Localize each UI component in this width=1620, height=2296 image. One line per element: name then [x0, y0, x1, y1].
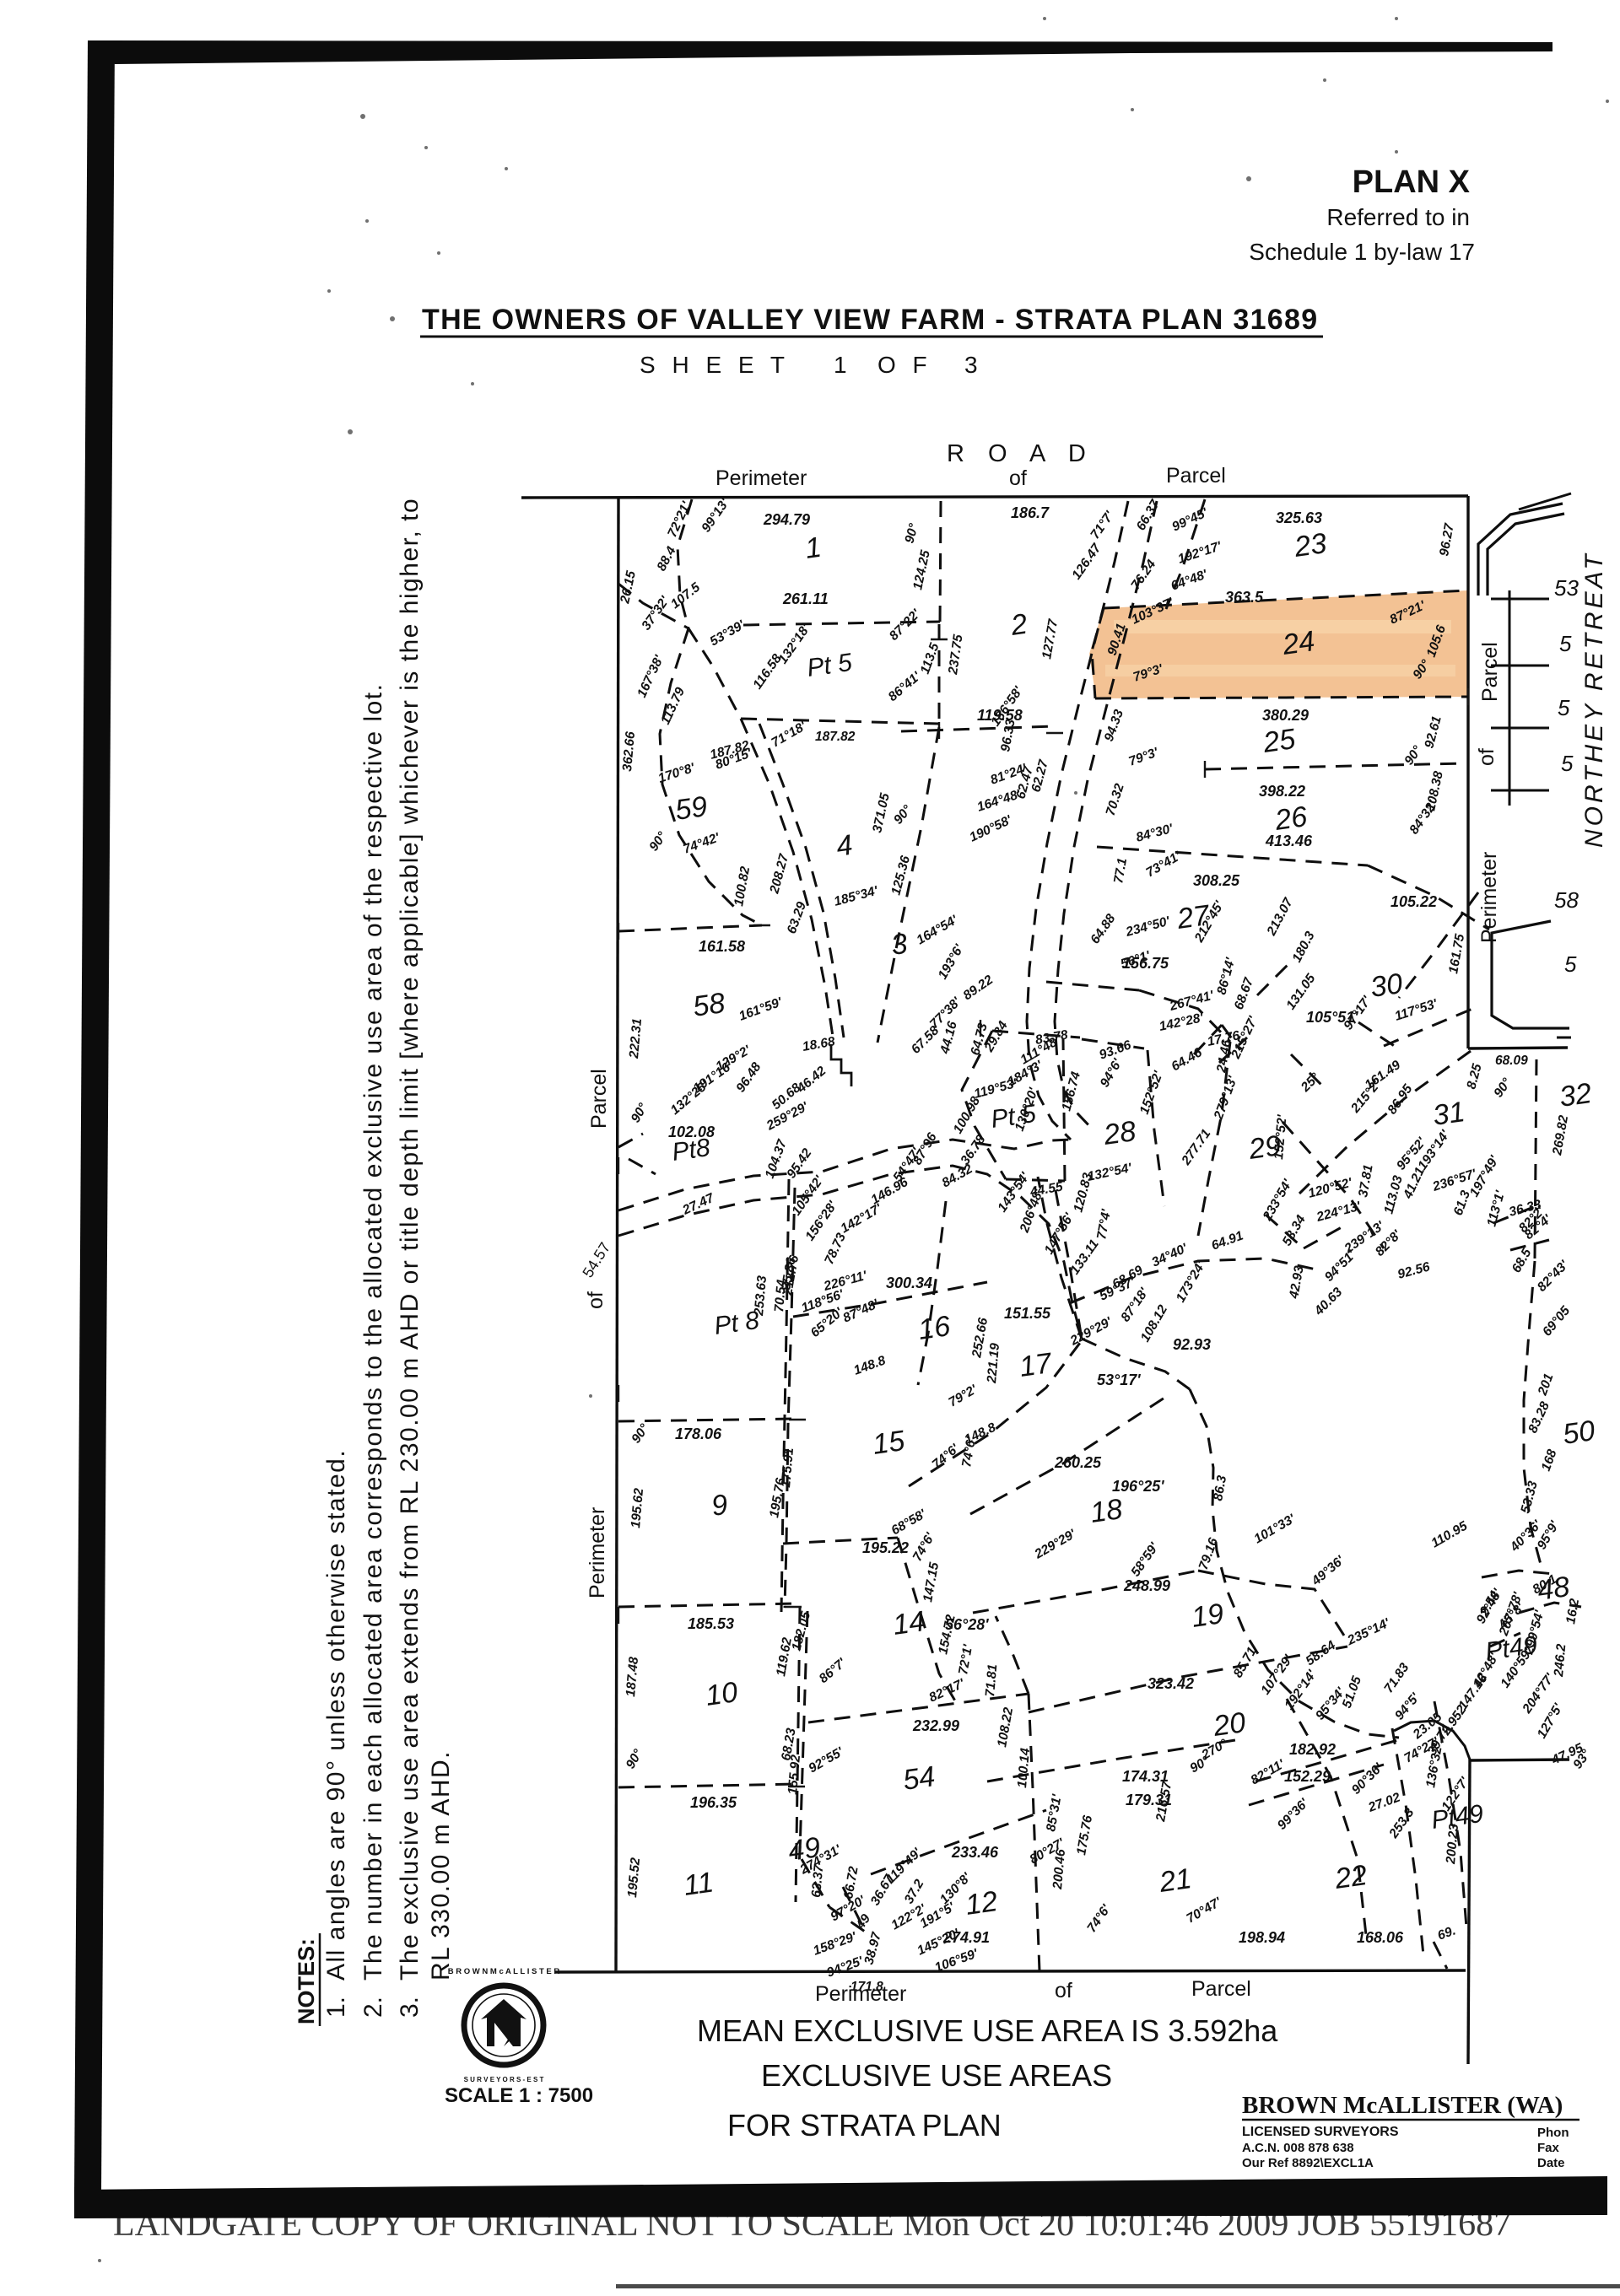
svg-text:Schedule 1 by-law 17: Schedule 1 by-law 17: [1249, 239, 1475, 265]
svg-text:O F: O F: [877, 352, 932, 378]
svg-text:5: 5: [1559, 631, 1572, 656]
svg-text:151.55: 151.55: [1004, 1305, 1051, 1322]
svg-text:168.06: 168.06: [1357, 1929, 1404, 1946]
svg-text:FOR STRATA PLAN: FOR STRATA PLAN: [727, 2108, 1002, 2142]
svg-text:17: 17: [1018, 1347, 1055, 1383]
svg-text:25: 25: [1261, 723, 1298, 759]
svg-text:50: 50: [1561, 1415, 1597, 1451]
svg-text:16: 16: [916, 1310, 953, 1346]
svg-text:NOTES:: NOTES:: [294, 1938, 319, 2024]
svg-text:31: 31: [1431, 1096, 1467, 1132]
svg-text:Parcel: Parcel: [1478, 642, 1502, 702]
svg-text:14: 14: [891, 1605, 927, 1641]
svg-text:22: 22: [1332, 1859, 1369, 1895]
svg-text:248.99: 248.99: [1123, 1577, 1170, 1594]
svg-text:S H E E T: S H E E T: [640, 352, 790, 378]
svg-text:5: 5: [1561, 751, 1574, 776]
svg-text:294.79: 294.79: [763, 511, 810, 528]
svg-text:of: of: [1475, 748, 1498, 766]
svg-text:2.: 2.: [359, 1997, 387, 2018]
svg-text:THE OWNERS OF VALLEY VIEW FARM: THE OWNERS OF VALLEY VIEW FARM - STRATA …: [422, 304, 1318, 336]
svg-text:MEAN EXCLUSIVE USE AREA IS: MEAN EXCLUSIVE USE AREA IS 3.592ha: [697, 2013, 1278, 2048]
svg-text:53°17': 53°17': [1097, 1372, 1141, 1388]
svg-text:323.42: 323.42: [1147, 1675, 1194, 1692]
svg-text:The exclusive use area extends: The exclusive use area extends from RL 2…: [396, 498, 424, 1981]
svg-text:246.2: 246.2: [1552, 1643, 1569, 1678]
svg-text:Parcel: Parcel: [1191, 1977, 1251, 2001]
svg-text:Perimeter: Perimeter: [586, 1507, 609, 1598]
svg-text:380.29: 380.29: [1262, 707, 1309, 724]
svg-text:152.29: 152.29: [1284, 1768, 1331, 1785]
svg-text:68.09: 68.09: [1495, 1054, 1528, 1068]
svg-text:10: 10: [704, 1676, 740, 1712]
svg-text:32: 32: [1558, 1077, 1594, 1113]
svg-text:63.37: 63.37: [809, 1863, 826, 1898]
svg-text:3.: 3.: [396, 1997, 424, 2018]
svg-text:NORTHEY RETREAT: NORTHEY RETREAT: [1580, 551, 1608, 848]
svg-text:3: 3: [964, 352, 978, 378]
svg-text:18: 18: [1088, 1493, 1125, 1529]
svg-text:58: 58: [691, 987, 727, 1023]
svg-text:92.93: 92.93: [1173, 1336, 1211, 1353]
svg-text:105.22: 105.22: [1390, 893, 1437, 910]
svg-text:196.35: 196.35: [690, 1794, 737, 1811]
svg-text:54: 54: [901, 1760, 937, 1797]
svg-text:A.C.N. 008 878 638: A.C.N. 008 878 638: [1242, 2141, 1354, 2155]
svg-text:102.08: 102.08: [668, 1124, 715, 1140]
svg-text:19: 19: [1190, 1598, 1226, 1634]
svg-text:398.22: 398.22: [1259, 783, 1305, 800]
svg-text:BROWN McALLISTER (WA): BROWN McALLISTER (WA): [1242, 2092, 1563, 2119]
svg-text:of: of: [1055, 1979, 1072, 2002]
svg-text:28: 28: [1101, 1115, 1138, 1151]
svg-text:161.58: 161.58: [699, 938, 745, 955]
svg-text:413.46: 413.46: [1265, 833, 1313, 849]
svg-text:11: 11: [682, 1866, 715, 1902]
svg-text:185.53: 185.53: [688, 1615, 734, 1632]
svg-text:Phon: Phon: [1537, 2126, 1569, 2140]
svg-text:1.: 1.: [322, 1997, 350, 2018]
svg-text:1: 1: [834, 352, 847, 378]
svg-text:Fax: Fax: [1537, 2141, 1560, 2155]
svg-text:12: 12: [964, 1885, 1000, 1921]
svg-text:All angles are 90° unless othe: All angles are 90° unless otherwise stat…: [322, 1449, 350, 1981]
svg-text:Perimeter: Perimeter: [715, 466, 807, 490]
svg-text:24: 24: [1280, 625, 1317, 661]
svg-text:232.99: 232.99: [912, 1717, 959, 1734]
svg-text:53: 53: [1554, 575, 1579, 601]
svg-text:178.06: 178.06: [675, 1426, 722, 1442]
svg-text:325.63: 325.63: [1276, 509, 1322, 526]
svg-text:198.94: 198.94: [1239, 1929, 1285, 1946]
svg-text:300.34: 300.34: [886, 1275, 932, 1291]
svg-text:5: 5: [1564, 951, 1577, 977]
svg-text:S U R V E Y O R S - E S T: S U R V E Y O R S - E S T: [464, 2076, 544, 2083]
svg-text:23: 23: [1292, 527, 1329, 563]
svg-text:59: 59: [673, 790, 710, 827]
svg-text:PLAN X: PLAN X: [1353, 164, 1471, 200]
svg-text:363.5: 363.5: [1225, 589, 1264, 606]
svg-text:Parcel: Parcel: [587, 1069, 611, 1129]
svg-text:Referred to in: Referred to in: [1326, 204, 1470, 230]
svg-text:LICENSED SURVEYORS: LICENSED SURVEYORS: [1242, 2125, 1399, 2139]
svg-text:Date: Date: [1537, 2156, 1565, 2170]
svg-text:30: 30: [1369, 967, 1405, 1004]
svg-text:171.8: 171.8: [850, 1980, 883, 1994]
svg-text:182.92: 182.92: [1289, 1741, 1336, 1758]
svg-text:20: 20: [1211, 1706, 1248, 1743]
svg-text:187.82: 187.82: [815, 730, 856, 744]
svg-text:58: 58: [1554, 887, 1579, 913]
svg-text:EXCLUSIVE USE AREAS: EXCLUSIVE USE AREAS: [761, 2058, 1112, 2093]
svg-text:195.22: 195.22: [862, 1539, 909, 1556]
svg-text:21: 21: [1157, 1862, 1194, 1899]
svg-text:71.81: 71.81: [983, 1663, 1000, 1697]
svg-text:of: of: [1009, 466, 1027, 490]
svg-text:5: 5: [1558, 695, 1570, 720]
svg-text:of: of: [584, 1291, 607, 1309]
svg-text:261.11: 261.11: [782, 590, 829, 607]
svg-text:Parcel: Parcel: [1166, 464, 1226, 488]
svg-text:B R O W N M c A L L I S T E R: B R O W N M c A L L I S T E R: [448, 1967, 560, 1976]
svg-text:308.25: 308.25: [1193, 872, 1240, 889]
svg-text:RL 330.00 m AHD.: RL 330.00 m AHD.: [427, 1750, 455, 1981]
svg-text:26: 26: [1272, 800, 1309, 837]
svg-text:The number in each allocated a: The number in each allocated area corres…: [359, 683, 387, 1981]
svg-text:260.25: 260.25: [1054, 1454, 1102, 1471]
svg-text:SCALE 1 : 7500: SCALE 1 : 7500: [445, 2084, 593, 2107]
svg-text:15: 15: [871, 1425, 907, 1461]
svg-text:196°25': 196°25': [1112, 1478, 1164, 1495]
svg-text:Our Ref 8892\EXCL1A: Our Ref 8892\EXCL1A: [1242, 2156, 1374, 2170]
svg-text:R O A D: R O A D: [947, 440, 1094, 467]
svg-text:186.7: 186.7: [1011, 504, 1050, 521]
svg-text:233.46: 233.46: [951, 1844, 999, 1861]
